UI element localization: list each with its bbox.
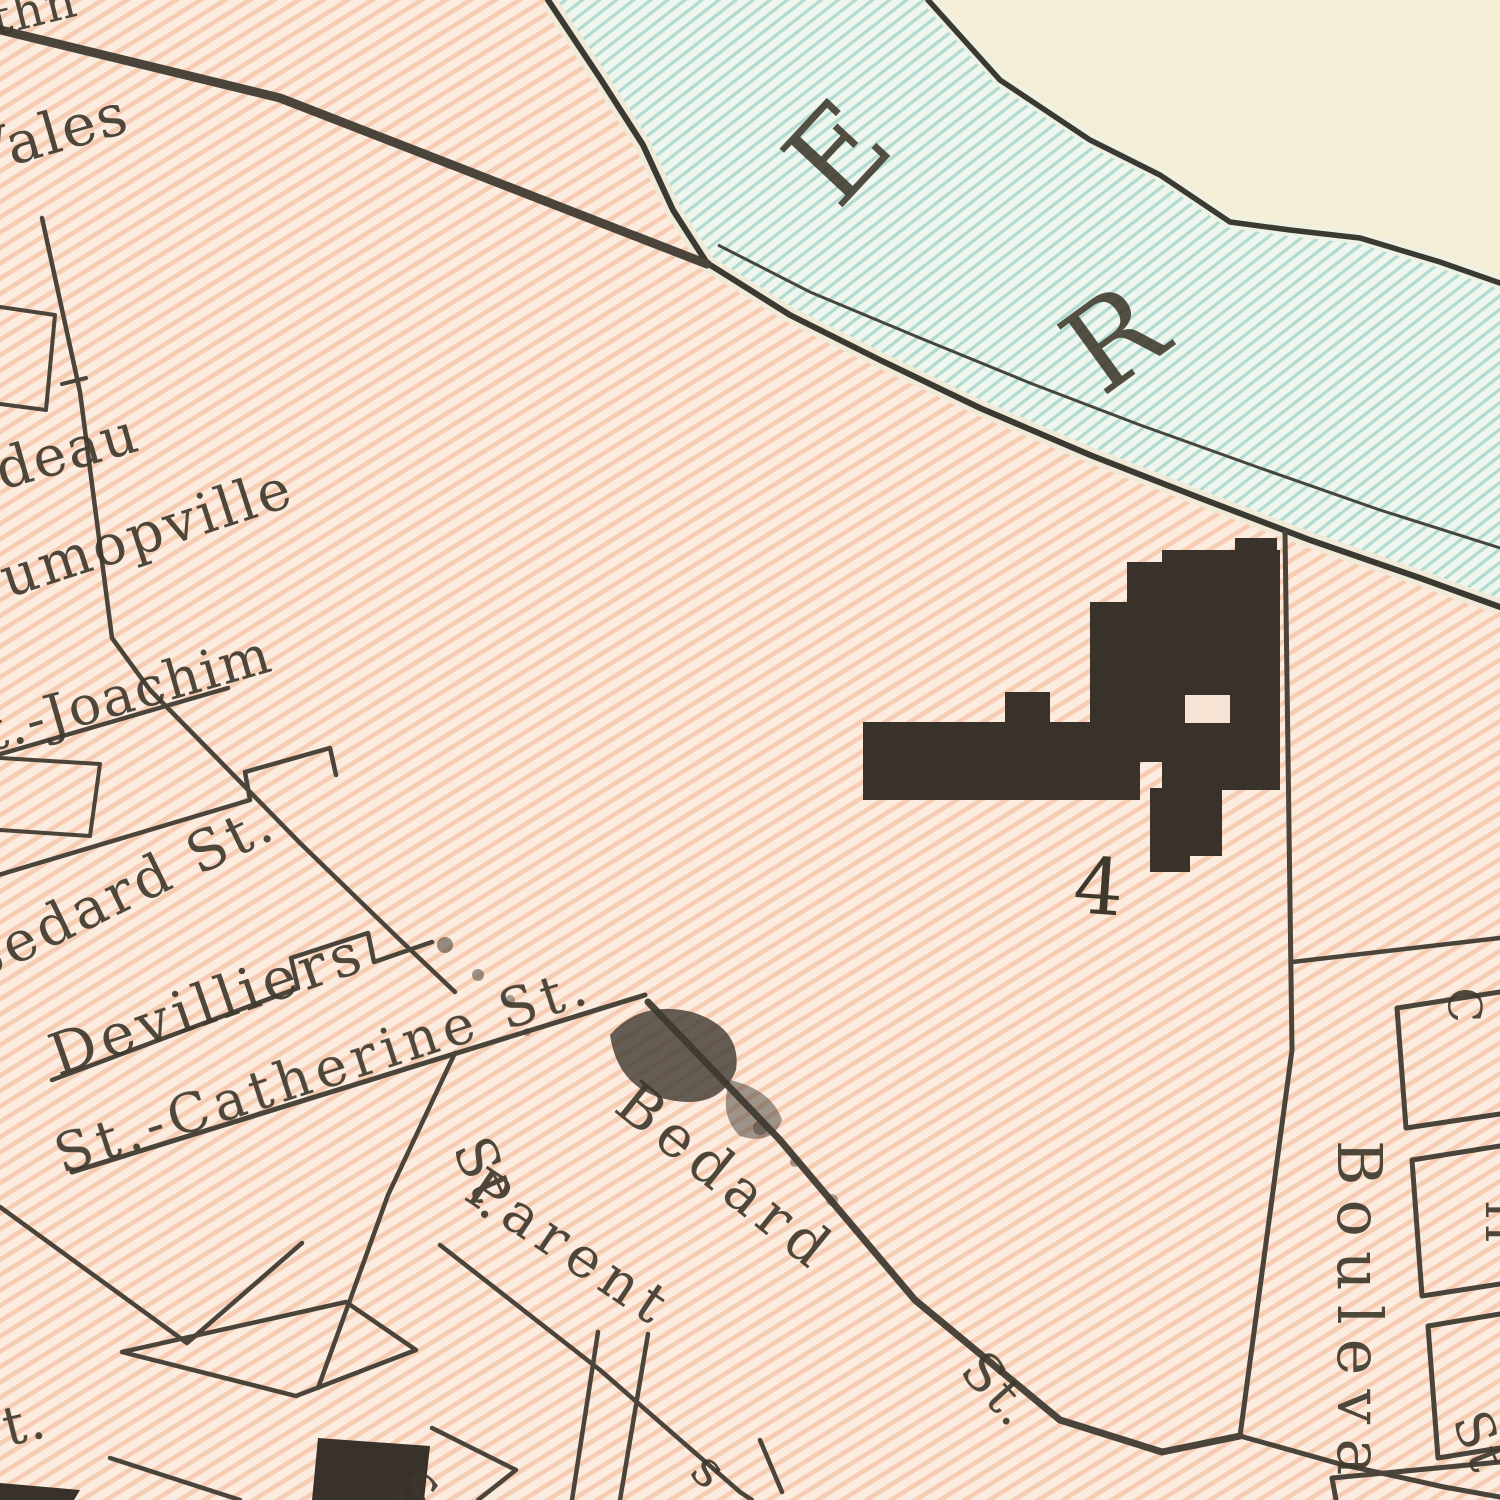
street-label-fragment-h: H	[1474, 1200, 1500, 1244]
building-notch	[1185, 695, 1230, 723]
map-canvas: thn Vales deau umopville t.-Joachim Beda…	[0, 0, 1500, 1500]
street-label-fragment-c: C	[1437, 986, 1492, 1023]
map-image: thn Vales deau umopville t.-Joachim Beda…	[0, 0, 1500, 1500]
street-label-boulevard: Bouleva	[1323, 1140, 1396, 1489]
building-number-label: 4	[1071, 841, 1127, 934]
